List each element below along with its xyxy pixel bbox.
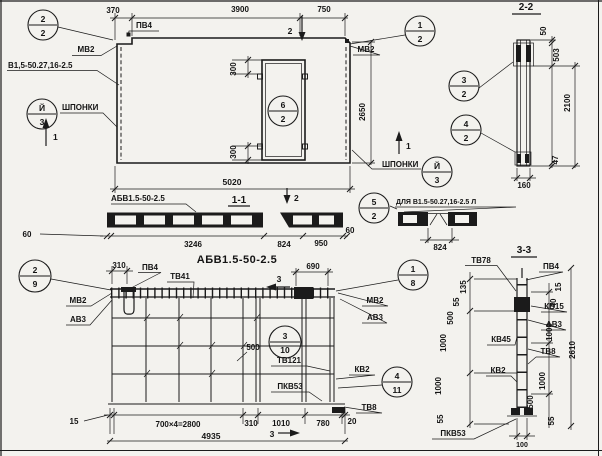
cut-marker-3-bottom: 3 — [270, 429, 300, 439]
svg-text:40: 40 — [549, 298, 558, 307]
svg-text:824: 824 — [433, 243, 447, 252]
svg-text:160: 160 — [517, 181, 531, 190]
svg-text:11: 11 — [393, 385, 402, 395]
reinforcement-title: АБВ1.5-50-2.5 — [197, 254, 277, 266]
svg-text:1000: 1000 — [439, 334, 448, 352]
cut-marker-1-left: 1 — [43, 118, 59, 146]
label-panel-series: В1,5-50.27,16-2.5 — [8, 61, 73, 70]
label-kv2-33: КВ2 — [490, 366, 506, 375]
label-kv45: КВ45 — [491, 335, 511, 344]
svg-text:9: 9 — [33, 279, 38, 289]
svg-text:1: 1 — [411, 264, 416, 274]
svg-text:2100: 2100 — [563, 94, 572, 112]
balloon-3-2: 3 2 — [449, 71, 479, 101]
svg-text:2: 2 — [418, 34, 423, 44]
svg-text:2: 2 — [41, 14, 46, 24]
cut-marker-2-bottom: 2 — [284, 188, 300, 204]
svg-text:310: 310 — [244, 419, 258, 428]
balloon-4-11: 4 11 — [382, 367, 412, 397]
door-opening — [258, 60, 308, 160]
reinforcement-view: АБВ1.5-50-2.5 — [66, 254, 388, 444]
label-mv2-right: МВ2 — [358, 45, 375, 54]
section-1-1-dims: 60 3246 824 950 60 — [23, 226, 355, 249]
svg-text:2: 2 — [33, 265, 38, 275]
svg-text:100: 100 — [516, 442, 528, 449]
label-keys-right: ШПОНКИ — [382, 160, 419, 169]
svg-text:3: 3 — [462, 75, 467, 85]
plan-length-dim: 5020 — [110, 166, 355, 193]
section-2-2: 2-2 50 503 47 2100 — [479, 2, 580, 190]
label-mv2: МВ2 — [70, 296, 87, 305]
svg-text:1: 1 — [418, 20, 423, 30]
label-pv4-plan: ПВ4 — [136, 21, 153, 30]
balloon-key-right: Й 3 — [422, 157, 452, 187]
svg-text:500: 500 — [246, 343, 260, 352]
balloon-2-2: 2 2 — [28, 10, 58, 40]
label-kv2: КВ2 — [354, 365, 370, 374]
label-mv2-r: МВ2 — [367, 296, 384, 305]
svg-text:Й: Й — [39, 102, 45, 113]
svg-text:950: 950 — [314, 239, 328, 248]
svg-text:4935: 4935 — [202, 431, 221, 441]
label-av3-r: АВ3 — [367, 313, 384, 322]
svg-text:2: 2 — [288, 26, 293, 36]
slab-section-right — [280, 213, 343, 228]
balloon-5-2: 5 2 — [359, 193, 389, 223]
panel-edge-section — [514, 40, 534, 166]
label-tv78: ТВ78 — [471, 256, 491, 265]
svg-text:2: 2 — [294, 193, 299, 203]
section-3-3-title: 3-3 — [517, 245, 532, 256]
svg-text:824: 824 — [277, 240, 291, 249]
dim-370: 370 — [106, 6, 120, 15]
svg-text:5: 5 — [372, 197, 377, 207]
svg-text:1000: 1000 — [538, 372, 547, 390]
label-abv: АБВ1.5-50-2.5 — [111, 194, 165, 203]
svg-text:Й: Й — [434, 160, 440, 171]
detail-left-version: ДЛЯ В1.5-50.27,16-2.5 Л 824 — [395, 199, 516, 252]
svg-text:55: 55 — [547, 416, 556, 425]
svg-text:1000: 1000 — [545, 323, 554, 341]
balloon-2-9: 2 9 — [19, 260, 51, 292]
svg-text:2: 2 — [462, 89, 467, 99]
label-pkv53: ПКВ53 — [277, 382, 303, 391]
svg-text:500: 500 — [526, 395, 535, 409]
label-pv4: ПВ4 — [142, 263, 159, 272]
svg-text:50: 50 — [539, 26, 548, 35]
balloon-4-2: 4 2 — [451, 115, 481, 145]
balloon-1-8: 1 8 — [398, 260, 428, 290]
svg-text:2: 2 — [281, 114, 286, 124]
section-1-1-title: 1-1 — [232, 195, 247, 206]
svg-text:2: 2 — [464, 133, 469, 143]
balloon-leaders — [51, 27, 405, 388]
svg-text:60: 60 — [346, 226, 355, 235]
svg-text:60: 60 — [23, 230, 32, 239]
svg-text:780: 780 — [316, 419, 330, 428]
svg-text:135: 135 — [459, 280, 468, 294]
section-1-1: 1-1 АБВ1.5-50-2.5 60 3246 82 — [23, 194, 516, 252]
svg-text:1: 1 — [53, 132, 58, 142]
svg-text:300: 300 — [229, 62, 238, 76]
balloon-key-left: Й 3 — [27, 99, 57, 129]
svg-text:3: 3 — [283, 331, 288, 341]
dim-750: 750 — [317, 5, 331, 14]
svg-text:503: 503 — [552, 48, 561, 62]
svg-text:690: 690 — [306, 262, 320, 271]
plan-height-dim: 2650 — [352, 39, 375, 166]
svg-text:15: 15 — [554, 282, 563, 291]
label-keys-left: ШПОНКИ — [62, 103, 99, 112]
svg-text:1: 1 — [406, 141, 411, 151]
svg-text:500: 500 — [446, 311, 455, 325]
svg-text:6: 6 — [281, 100, 286, 110]
svg-text:47: 47 — [551, 155, 560, 164]
balloon-6-2: 6 2 — [268, 96, 298, 126]
reinforcement-mesh — [108, 287, 345, 413]
svg-text:3: 3 — [277, 274, 282, 284]
svg-text:2650: 2650 — [358, 103, 367, 121]
svg-text:2: 2 — [372, 211, 377, 221]
drawing-sheet: 370 3900 750 ПВ4 МВ2 В1,5-50.27,16-2.5 Ш… — [0, 0, 602, 456]
balloon-1-2: 1 2 — [405, 16, 435, 46]
cut-marker-1-right: 1 — [396, 131, 412, 154]
svg-text:2610: 2610 — [568, 341, 577, 359]
label-pv4-33: ПВ4 — [543, 262, 560, 271]
reinforcement-inner-labels: 500 ТВ121 КВ2 ПКВ53 ТВ8 — [237, 343, 382, 413]
label-av3: АВ3 — [70, 315, 87, 324]
balloon-3-10: 3 10 — [269, 326, 301, 358]
panel-drawing: 370 3900 750 ПВ4 МВ2 В1,5-50.27,16-2.5 Ш… — [0, 0, 602, 456]
svg-text:3: 3 — [270, 429, 275, 439]
reinforcement-bottom-dims: 15 700×4=2800 310 1010 780 20 4935 — [70, 408, 357, 444]
svg-text:55: 55 — [436, 414, 445, 423]
svg-text:4: 4 — [464, 119, 469, 129]
svg-text:8: 8 — [411, 278, 416, 288]
svg-text:1000: 1000 — [434, 377, 443, 395]
label-pkv53-33: ПКВ53 — [440, 429, 466, 438]
detail-label: ДЛЯ В1.5-50.27,16-2.5 Л — [396, 199, 476, 206]
svg-text:300: 300 — [229, 145, 238, 159]
dim-3900: 3900 — [231, 5, 249, 14]
label-tv8: ТВ8 — [361, 403, 377, 412]
svg-text:310: 310 — [112, 261, 126, 270]
svg-text:15: 15 — [70, 417, 79, 426]
svg-text:4: 4 — [395, 371, 400, 381]
section-2-2-title: 2-2 — [519, 2, 534, 13]
svg-text:700×4=2800: 700×4=2800 — [156, 420, 201, 429]
svg-text:2: 2 — [41, 28, 46, 38]
label-tv8-33: ТВ8 — [540, 347, 556, 356]
svg-text:10: 10 — [280, 345, 290, 355]
plan-view: 370 3900 750 ПВ4 МВ2 В1,5-50.27,16-2.5 Ш… — [7, 5, 421, 204]
section-3-3-labels: ТВ78 ПВ4 КВ15 АВ3 КВ45 ТВ8 КВ2 ПКВ53 — [432, 256, 567, 439]
svg-text:1010: 1010 — [272, 419, 290, 428]
svg-text:55: 55 — [452, 297, 461, 306]
label-tv41: ТВ41 — [170, 272, 190, 281]
svg-text:3246: 3246 — [184, 240, 202, 249]
svg-text:5020: 5020 — [223, 177, 242, 187]
svg-text:3: 3 — [40, 117, 45, 127]
svg-text:20: 20 — [348, 417, 357, 426]
svg-text:3: 3 — [435, 175, 440, 185]
label-mv2-left: МВ2 — [78, 45, 95, 54]
slab-section-left — [107, 213, 263, 228]
section-3-3: 3-3 ТВ78 ПВ4 КВ15 АВ3 КВ45 ТВ8 — [432, 245, 577, 449]
